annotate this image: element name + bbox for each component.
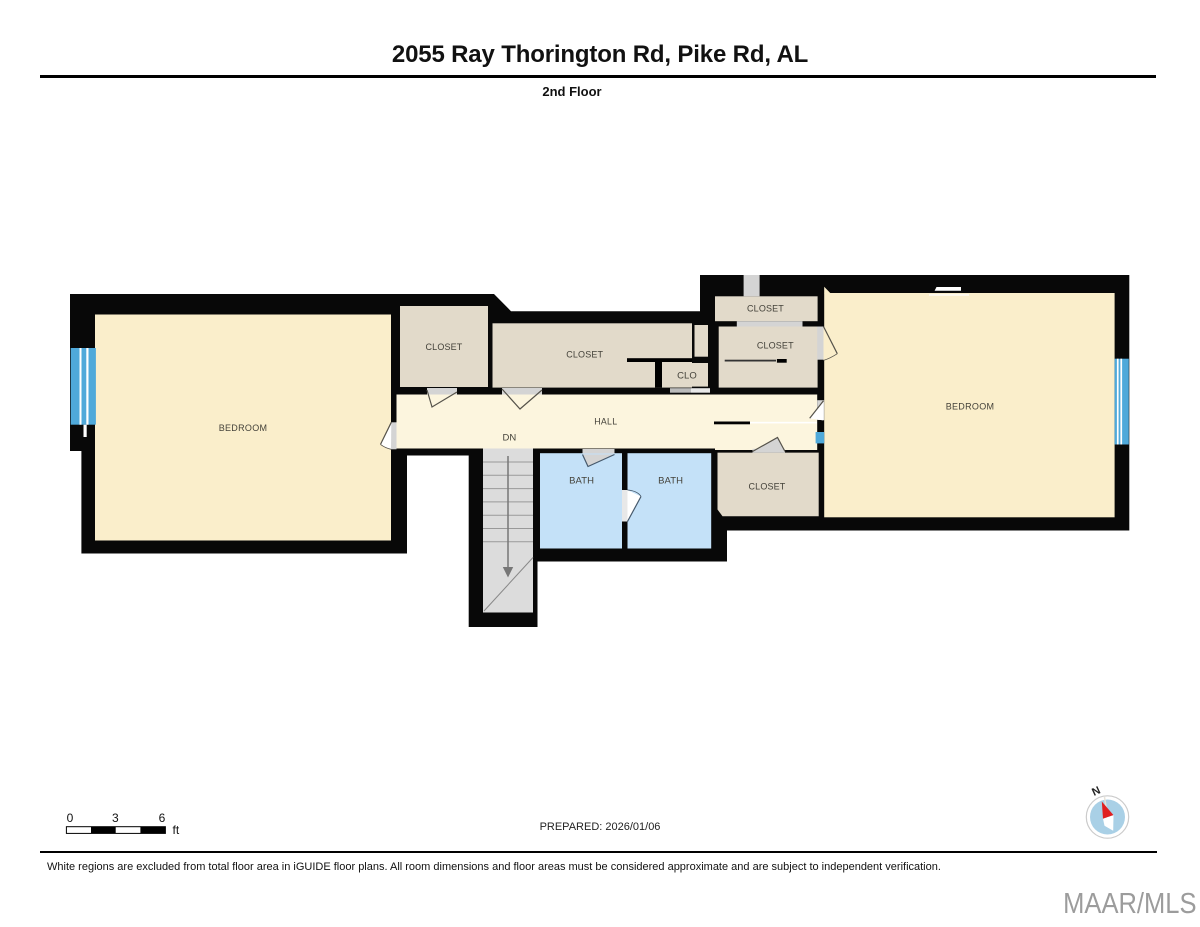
- svg-text:BEDROOM: BEDROOM: [219, 423, 268, 433]
- svg-text:CLO: CLO: [677, 371, 697, 382]
- svg-text:DN: DN: [502, 433, 516, 444]
- svg-text:HALL: HALL: [594, 416, 617, 426]
- svg-text:CLOSET: CLOSET: [747, 304, 784, 314]
- svg-text:BEDROOM: BEDROOM: [946, 402, 995, 412]
- svg-text:BATH: BATH: [569, 475, 594, 486]
- svg-text:BATH: BATH: [658, 475, 683, 486]
- svg-text:CLOSET: CLOSET: [757, 341, 794, 351]
- svg-text:CLOSET: CLOSET: [426, 342, 463, 352]
- svg-text:CLOSET: CLOSET: [566, 350, 603, 360]
- svg-text:CLOSET: CLOSET: [749, 481, 786, 491]
